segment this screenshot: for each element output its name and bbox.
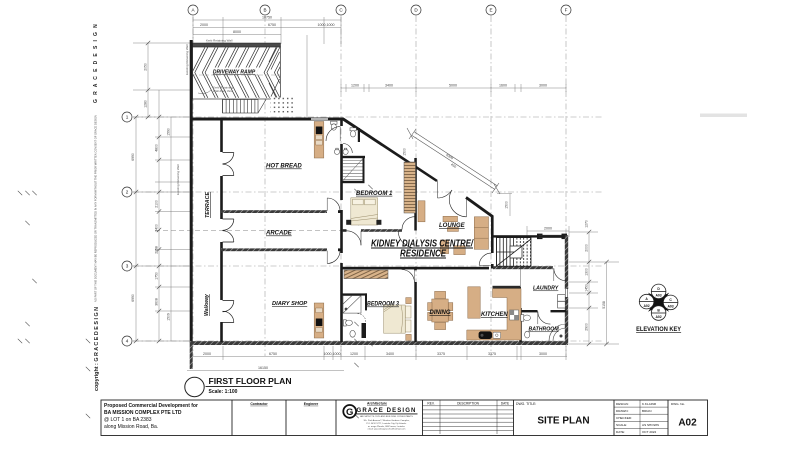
svg-text:BA MISSION COMPLEX PTE LTD: BA MISSION COMPLEX PTE LTD: [104, 410, 182, 416]
svg-text:A02: A02: [655, 315, 661, 319]
svg-text:LOUNGE: LOUNGE: [439, 223, 466, 229]
svg-text:1750: 1750: [155, 272, 159, 280]
svg-text:DESCRIPTION: DESCRIPTION: [457, 401, 479, 405]
svg-text:A02: A02: [678, 418, 697, 429]
svg-text:Contractor: Contractor: [250, 402, 268, 406]
svg-text:email: gracedesignarchs@hotmai: email: gracedesignarchs@hotmail.com: [368, 428, 406, 431]
svg-text:2000: 2000: [585, 244, 589, 252]
svg-text:Proposed Commercial Developmen: Proposed Commercial Development for: [104, 403, 198, 409]
svg-text:E: E: [489, 8, 492, 13]
svg-text:3: 3: [126, 264, 129, 269]
svg-text:ARCHITECTS CIVIL AND BUILDING: ARCHITECTS CIVIL AND BUILDING CONSULTANT…: [360, 415, 413, 418]
svg-text:SCALE:: SCALE:: [616, 423, 627, 427]
svg-text:Existing Retaining Wall: Existing Retaining Wall: [176, 164, 180, 195]
svg-text:DESIGN:: DESIGN:: [616, 402, 629, 406]
svg-text:1200: 1200: [350, 352, 358, 356]
svg-text:30+ Park Avenue?, Windsor Gard: 30+ Park Avenue?, Windsor Gardens Comple…: [364, 419, 410, 422]
svg-text:G: G: [346, 407, 353, 418]
svg-text:2900: 2900: [585, 323, 589, 331]
svg-text:A02: A02: [643, 304, 649, 308]
svg-text:along Mission Road, Ba.: along Mission Road, Ba.: [104, 424, 158, 430]
svg-text:G R A C E D E S I G N: G R A C E D E S I G N: [93, 23, 99, 103]
svg-text:Existing Retaining Wall: Existing Retaining Wall: [185, 44, 189, 75]
svg-text:AS SHOWN: AS SHOWN: [642, 423, 659, 427]
svg-text:@ LOT 1 on BA 2383: @ LOT 1 on BA 2383: [104, 417, 152, 423]
svg-text:DIARY SHOP: DIARY SHOP: [272, 301, 307, 307]
svg-text:2358: 2358: [155, 246, 159, 254]
svg-text:6750: 6750: [269, 352, 277, 356]
svg-text:REV.: REV.: [427, 401, 434, 405]
svg-text:BEDROOM 1: BEDROOM 1: [356, 191, 393, 197]
svg-text:BEDROOM 3: BEDROOM 3: [367, 302, 400, 308]
svg-text:1509: 1509: [167, 313, 171, 321]
svg-text:NO PART OF THIS DOCUMENT MAY B: NO PART OF THIS DOCUMENT MAY BE REPRODUC…: [94, 115, 98, 302]
svg-text:2000: 2000: [203, 352, 211, 356]
svg-text:KITCHEN: KITCHEN: [481, 312, 508, 318]
svg-text:3400: 3400: [386, 352, 394, 356]
svg-text:Kerb Retaining Wall: Kerb Retaining Wall: [206, 39, 233, 43]
svg-text:6750: 6750: [268, 23, 276, 27]
svg-text:3608: 3608: [155, 298, 159, 306]
svg-text:2050: 2050: [144, 63, 148, 71]
svg-text:2100: 2100: [155, 200, 159, 208]
svg-text:m: mega Planels, BNZ tower, La: m: mega Planels, BNZ tower, Lautoka.: [368, 425, 406, 428]
svg-text:1500: 1500: [403, 148, 407, 156]
svg-text:3000: 3000: [539, 84, 547, 88]
svg-text:6990: 6990: [131, 294, 135, 302]
svg-text:6990: 6990: [131, 153, 135, 161]
svg-text:Wall drive thru.: Wall drive thru.: [213, 89, 233, 93]
svg-text:1: 1: [126, 115, 129, 120]
svg-text:ELEVATION KEY: ELEVATION KEY: [636, 326, 682, 333]
svg-text:OCT 2022: OCT 2022: [642, 430, 656, 434]
svg-text:P.O. BOX 5777, Lautoka City, F: P.O. BOX 5777, Lautoka City, Fiji Island…: [366, 422, 407, 425]
svg-text:5000: 5000: [449, 84, 457, 88]
svg-text:DRAWN:: DRAWN:: [616, 409, 629, 413]
svg-text:1200: 1200: [351, 84, 359, 88]
svg-text:RESIDENCE: RESIDENCE: [400, 249, 446, 260]
svg-text:LAUNDRY: LAUNDRY: [533, 286, 559, 292]
svg-text:2000: 2000: [200, 23, 208, 27]
svg-text:copyright : G R A C E D E S: copyright : G R A C E D E S I G N: [94, 307, 100, 391]
svg-text:FIRST FLOOR PLAN: FIRST FLOOR PLAN: [209, 376, 292, 386]
svg-text:K.KLAINR: K.KLAINR: [642, 402, 657, 406]
svg-text:16150: 16150: [258, 366, 268, 370]
svg-text:Architecture: Architecture: [367, 401, 387, 405]
svg-text:Engineer: Engineer: [304, 402, 319, 406]
svg-text:1590: 1590: [167, 128, 171, 136]
svg-text:GRACE DESIGN: GRACE DESIGN: [357, 407, 417, 414]
svg-text:3375: 3375: [437, 352, 445, 356]
svg-text:3375: 3375: [488, 352, 496, 356]
svg-text:ARCADE: ARCADE: [265, 231, 293, 237]
svg-text:DWG. TITLE:: DWG. TITLE:: [516, 402, 536, 406]
svg-text:A03: A03: [667, 305, 673, 309]
svg-text:Scale: 1:100: Scale: 1:100: [209, 389, 238, 395]
svg-text:DINING: DINING: [430, 310, 451, 316]
svg-text:TERRACE: TERRACE: [205, 192, 211, 218]
svg-text:SITE PLAN: SITE PLAN: [537, 416, 589, 427]
svg-text:B: B: [263, 8, 266, 13]
svg-text:1000,1000: 1000,1000: [324, 352, 341, 356]
svg-text:F: F: [565, 8, 568, 13]
svg-text:1300: 1300: [585, 268, 589, 276]
svg-text:3400: 3400: [385, 84, 393, 88]
svg-text:DATE: DATE: [501, 401, 509, 405]
svg-text:2: 2: [126, 190, 129, 195]
svg-text:DRIVEWAY RAMP: DRIVEWAY RAMP: [213, 69, 256, 75]
svg-text:CHECKED:: CHECKED:: [616, 416, 632, 420]
svg-text:8000: 8000: [233, 30, 241, 34]
svg-text:HOT BREAD: HOT BREAD: [266, 164, 302, 170]
svg-text:1450: 1450: [585, 284, 589, 292]
svg-text:2400: 2400: [155, 224, 159, 232]
svg-text:A03: A03: [655, 294, 661, 298]
svg-text:3000: 3000: [539, 352, 547, 356]
svg-text:Walkway: Walkway: [204, 293, 210, 316]
svg-text:1600: 1600: [499, 84, 507, 88]
svg-text:DWG. No.: DWG. No.: [671, 402, 685, 406]
svg-text:1500: 1500: [505, 201, 509, 209]
svg-text:4800: 4800: [155, 144, 159, 152]
svg-text:BRIAN: BRIAN: [642, 409, 651, 413]
svg-text:10750: 10750: [262, 16, 272, 20]
svg-text:BATHROOM: BATHROOM: [529, 327, 560, 333]
svg-text:4: 4: [126, 339, 129, 344]
svg-text:2000: 2000: [544, 227, 552, 231]
svg-text:1280: 1280: [144, 100, 148, 108]
svg-text:DATE:: DATE:: [616, 430, 625, 434]
svg-text:5158: 5158: [602, 301, 606, 309]
svg-text:1000,1000: 1000,1000: [318, 23, 335, 27]
svg-text:1270: 1270: [585, 220, 589, 228]
